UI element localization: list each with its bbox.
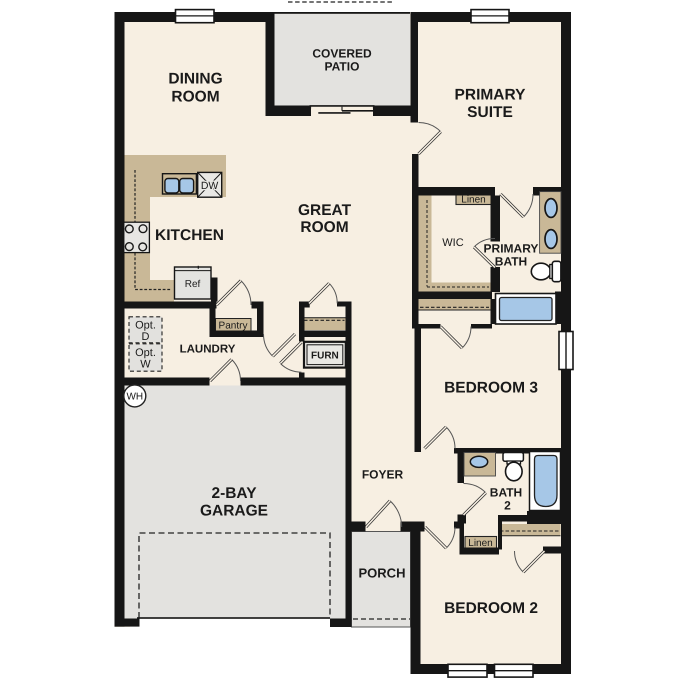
svg-text:W: W <box>140 359 151 371</box>
svg-text:WH: WH <box>126 392 143 403</box>
svg-text:2-BAY: 2-BAY <box>211 485 257 502</box>
svg-text:2: 2 <box>504 499 511 513</box>
svg-text:PORCH: PORCH <box>359 565 406 580</box>
svg-text:Opt.: Opt. <box>135 347 156 359</box>
svg-text:PRIMARY: PRIMARY <box>484 241 539 255</box>
svg-text:GARAGE: GARAGE <box>200 502 268 519</box>
svg-text:ROOM: ROOM <box>300 219 348 236</box>
svg-text:COVERED: COVERED <box>312 46 372 60</box>
svg-text:FURN: FURN <box>311 350 339 361</box>
svg-text:PRIMARY: PRIMARY <box>455 86 527 103</box>
svg-text:PATIO: PATIO <box>325 60 360 74</box>
svg-text:FOYER: FOYER <box>362 467 404 481</box>
svg-text:D: D <box>142 331 150 343</box>
svg-text:BATH: BATH <box>490 486 522 500</box>
svg-text:Opt.: Opt. <box>135 320 156 332</box>
svg-text:GREAT: GREAT <box>298 202 352 219</box>
svg-text:BEDROOM 2: BEDROOM 2 <box>444 600 538 617</box>
svg-text:Linen: Linen <box>468 538 492 549</box>
svg-text:KITCHEN: KITCHEN <box>155 227 224 244</box>
svg-text:WIC: WIC <box>442 237 463 249</box>
svg-text:ROOM: ROOM <box>171 88 219 105</box>
svg-text:BEDROOM 3: BEDROOM 3 <box>444 379 538 396</box>
svg-text:LAUNDRY: LAUNDRY <box>180 343 236 355</box>
svg-text:Linen: Linen <box>461 194 485 205</box>
svg-text:BATH: BATH <box>495 254 527 268</box>
svg-text:DW: DW <box>201 180 219 192</box>
svg-text:SUITE: SUITE <box>467 104 513 121</box>
svg-text:Ref: Ref <box>185 279 201 290</box>
svg-text:Pantry: Pantry <box>219 320 248 331</box>
svg-text:DINING: DINING <box>168 70 222 87</box>
